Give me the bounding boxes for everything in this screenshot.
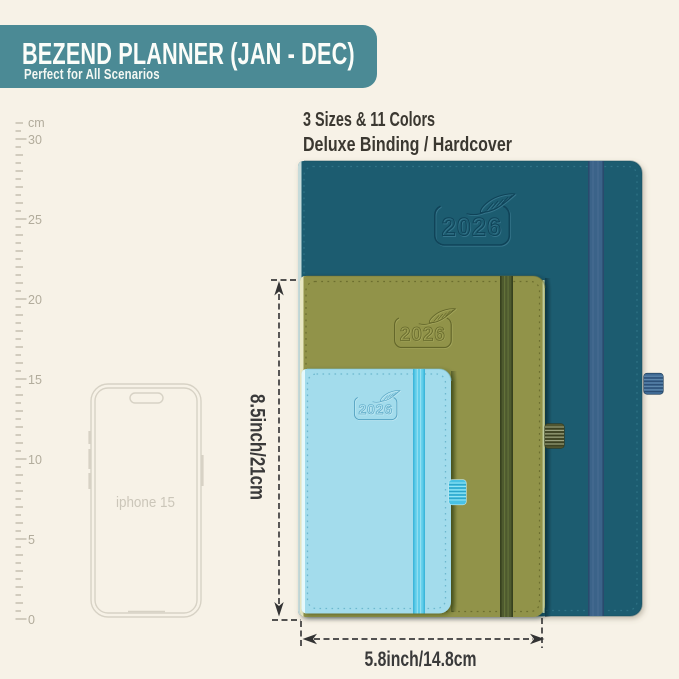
- svg-text:8.5inch/21cm: 8.5inch/21cm: [246, 394, 269, 500]
- svg-text:20: 20: [28, 293, 42, 307]
- svg-text:30: 30: [28, 133, 42, 147]
- svg-text:5: 5: [28, 533, 35, 547]
- svg-text:iphone 15: iphone 15: [116, 495, 175, 511]
- svg-text:5.8inch/14.8cm: 5.8inch/14.8cm: [365, 647, 477, 671]
- svg-text:10: 10: [28, 453, 42, 467]
- svg-text:25: 25: [28, 213, 42, 227]
- svg-text:0: 0: [28, 613, 35, 627]
- svg-text:15: 15: [28, 373, 42, 387]
- svg-text:cm: cm: [28, 116, 45, 130]
